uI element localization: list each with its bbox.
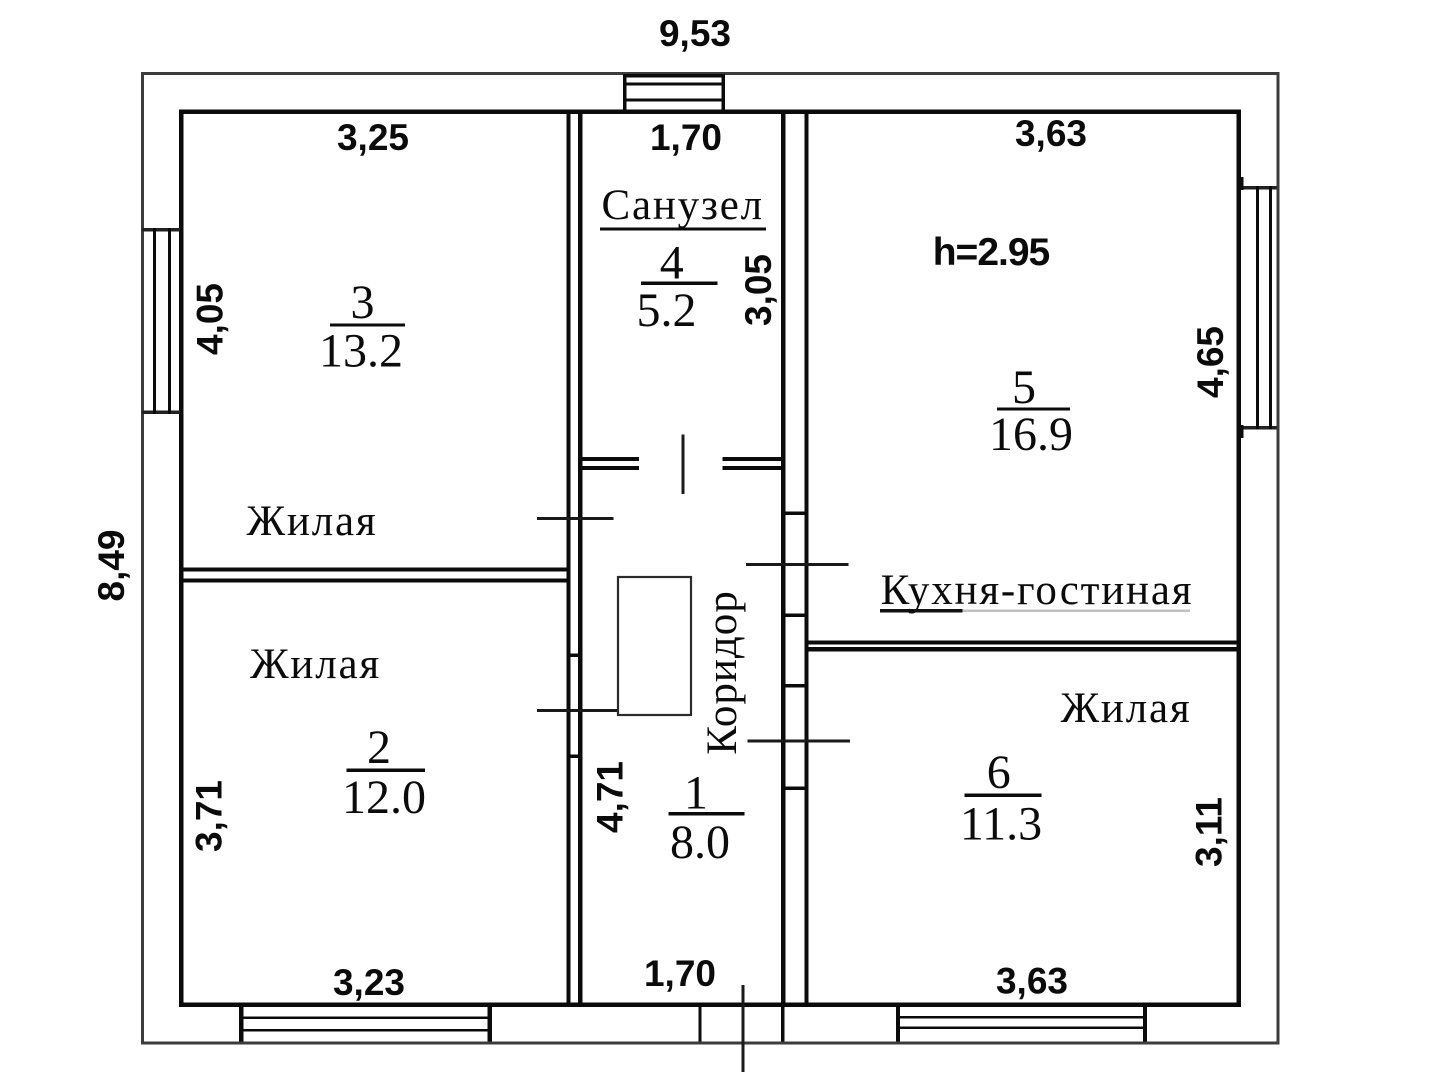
svg-text:4,65: 4,65 <box>1190 326 1231 398</box>
svg-text:3: 3 <box>351 276 375 329</box>
svg-text:6: 6 <box>987 746 1011 799</box>
svg-text:1,70: 1,70 <box>644 953 716 994</box>
svg-text:4,71: 4,71 <box>590 761 631 833</box>
svg-text:3,71: 3,71 <box>189 780 230 852</box>
svg-text:3,11: 3,11 <box>1189 797 1230 867</box>
svg-text:13.2: 13.2 <box>319 325 403 378</box>
svg-text:h=2.95: h=2.95 <box>933 231 1050 274</box>
svg-text:5.2: 5.2 <box>637 284 697 337</box>
svg-text:Коридор: Коридор <box>699 590 746 754</box>
svg-text:Жилая: Жилая <box>250 641 381 688</box>
svg-text:3,05: 3,05 <box>738 254 779 326</box>
svg-text:12.0: 12.0 <box>342 771 426 824</box>
svg-text:8.0: 8.0 <box>670 816 730 869</box>
svg-text:Жилая: Жилая <box>1061 685 1192 732</box>
svg-text:3,63: 3,63 <box>996 961 1068 1002</box>
svg-text:3,63: 3,63 <box>1015 113 1087 154</box>
svg-text:Кухня-гостиная: Кухня-гостиная <box>881 567 1194 614</box>
svg-text:16.9: 16.9 <box>989 408 1073 461</box>
svg-text:1: 1 <box>684 767 708 820</box>
svg-text:9,53: 9,53 <box>659 13 731 54</box>
svg-text:2: 2 <box>367 721 391 774</box>
svg-text:3,25: 3,25 <box>337 117 409 158</box>
svg-text:3,23: 3,23 <box>333 962 405 1003</box>
svg-text:5: 5 <box>1012 361 1036 414</box>
svg-text:8,49: 8,49 <box>91 529 132 601</box>
svg-text:Санузел: Санузел <box>601 182 763 229</box>
svg-text:11.3: 11.3 <box>960 798 1042 851</box>
svg-text:Жилая: Жилая <box>247 498 378 545</box>
svg-text:1,70: 1,70 <box>650 117 722 158</box>
svg-text:4,05: 4,05 <box>190 283 231 355</box>
